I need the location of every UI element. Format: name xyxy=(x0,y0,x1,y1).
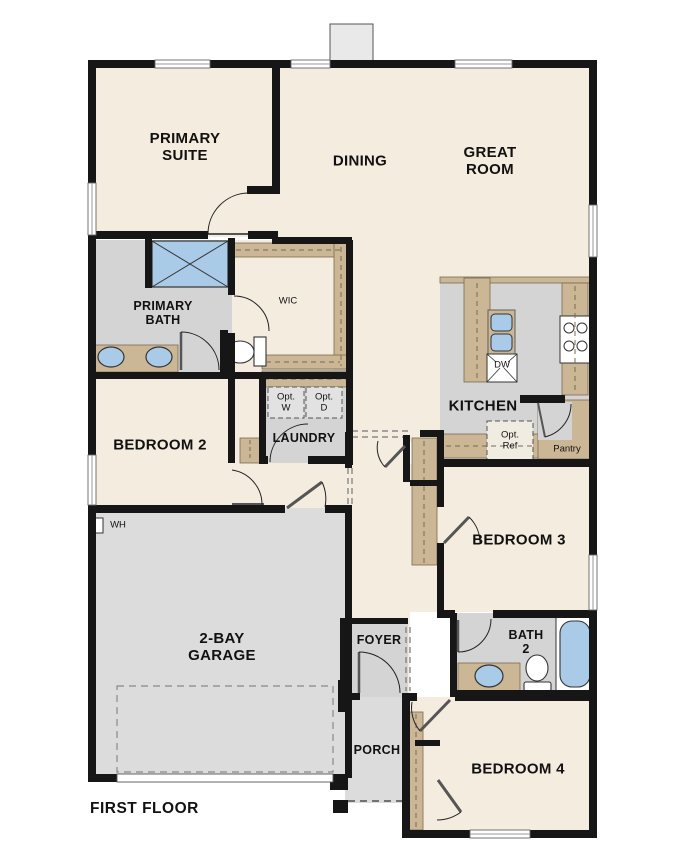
window xyxy=(155,60,210,68)
floor-plan-drawing xyxy=(0,0,683,858)
label-opt-refrigerator: Opt. Ref xyxy=(501,430,519,451)
garage-door-opening xyxy=(117,774,333,782)
label-great-room: GREAT ROOM xyxy=(464,145,517,179)
label-dining: DINING xyxy=(333,154,387,171)
bath-sink-right xyxy=(146,347,172,367)
window xyxy=(589,555,597,610)
window xyxy=(88,455,96,505)
label-kitchen: KITCHEN xyxy=(449,399,518,416)
label-opt-washer: Opt. W xyxy=(277,392,295,413)
bath-sink-left xyxy=(98,347,124,367)
hall-closet xyxy=(412,438,437,565)
label-primary-bath: PRIMARY BATH xyxy=(133,299,192,327)
porch-post xyxy=(333,800,348,813)
label-opt-dryer: Opt. D xyxy=(315,392,333,413)
chimney xyxy=(330,24,373,62)
window xyxy=(455,60,512,68)
label-dishwasher: DW xyxy=(494,361,510,372)
label-bedroom-3: BEDROOM 3 xyxy=(472,533,566,550)
label-foyer: FOYER xyxy=(357,633,402,647)
label-laundry: LAUNDRY xyxy=(273,431,336,445)
toilet2-base xyxy=(524,682,551,691)
toilet1-tank xyxy=(254,337,266,366)
label-bedroom-4: BEDROOM 4 xyxy=(471,762,565,779)
window xyxy=(291,60,330,68)
label-porch: PORCH xyxy=(354,743,401,757)
floor-title: FIRST FLOOR xyxy=(90,800,199,818)
hall-nook-floor xyxy=(232,460,352,508)
label-primary-suite: PRIMARY SUITE xyxy=(150,131,221,165)
bath2-tub xyxy=(560,621,590,687)
toilet2-bowl xyxy=(526,655,548,681)
kitchen-top-counter xyxy=(440,277,594,283)
label-bath-2: BATH 2 xyxy=(509,628,544,656)
window xyxy=(589,205,597,257)
floor-plan: PRIMARY SUITE DINING GREAT ROOM PRIMARY … xyxy=(0,0,683,858)
label-pantry: Pantry xyxy=(553,445,580,456)
window xyxy=(88,183,96,235)
window xyxy=(470,830,530,838)
label-bedroom-2: BEDROOM 2 xyxy=(113,438,207,455)
label-wic: WIC xyxy=(279,297,297,308)
label-water-heater: WH xyxy=(110,521,126,532)
label-garage: 2-BAY GARAGE xyxy=(188,631,256,665)
bath2-sink xyxy=(475,665,503,687)
